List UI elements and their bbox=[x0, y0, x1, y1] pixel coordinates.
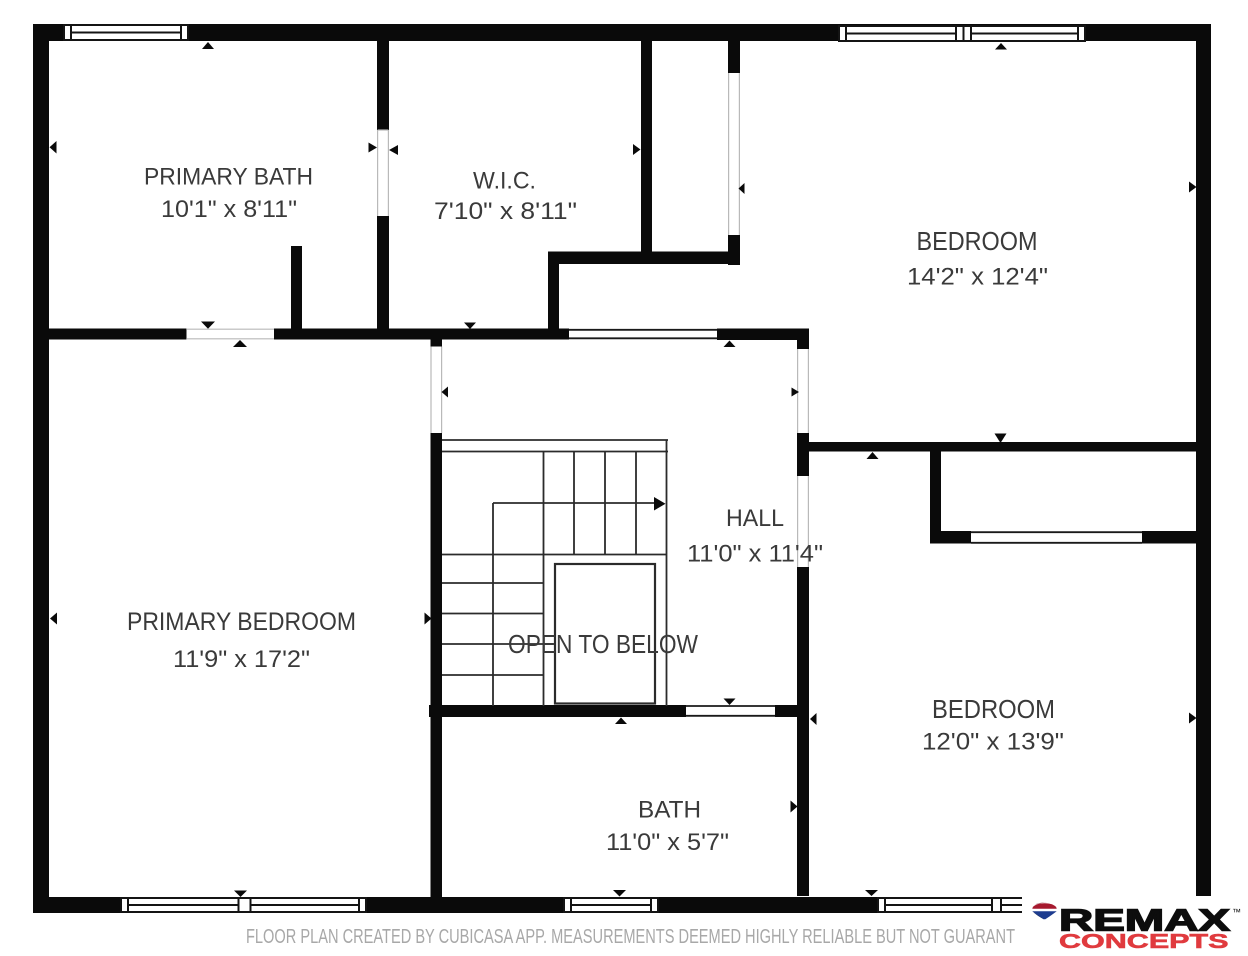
svg-text:BATH: BATH bbox=[638, 797, 701, 824]
svg-text:W.I.C.: W.I.C. bbox=[473, 168, 536, 195]
svg-text:™: ™ bbox=[1232, 907, 1241, 917]
svg-text:12'0" x 13'9": 12'0" x 13'9" bbox=[922, 729, 1064, 756]
svg-text:OPEN TO BELOW: OPEN TO BELOW bbox=[508, 629, 698, 659]
svg-text:11'0" x 11'4": 11'0" x 11'4" bbox=[687, 541, 823, 568]
svg-text:PRIMARY BEDROOM: PRIMARY BEDROOM bbox=[127, 608, 356, 636]
svg-text:10'1" x 8'11": 10'1" x 8'11" bbox=[161, 196, 297, 223]
svg-text:BEDROOM: BEDROOM bbox=[917, 226, 1038, 256]
svg-text:11'9" x 17'2": 11'9" x 17'2" bbox=[173, 646, 310, 673]
svg-text:11'0" x 5'7": 11'0" x 5'7" bbox=[606, 829, 729, 856]
svg-text:7'10" x 8'11": 7'10" x 8'11" bbox=[434, 198, 577, 225]
svg-text:FLOOR PLAN CREATED BY CUBICASA: FLOOR PLAN CREATED BY CUBICASA APP. MEAS… bbox=[246, 926, 1015, 948]
svg-text:BEDROOM: BEDROOM bbox=[932, 694, 1055, 724]
svg-text:PRIMARY BATH: PRIMARY BATH bbox=[144, 164, 313, 191]
svg-text:CONCEPTS: CONCEPTS bbox=[1059, 930, 1229, 953]
svg-text:HALL: HALL bbox=[726, 505, 784, 532]
svg-text:14'2" x 12'4": 14'2" x 12'4" bbox=[907, 264, 1048, 291]
